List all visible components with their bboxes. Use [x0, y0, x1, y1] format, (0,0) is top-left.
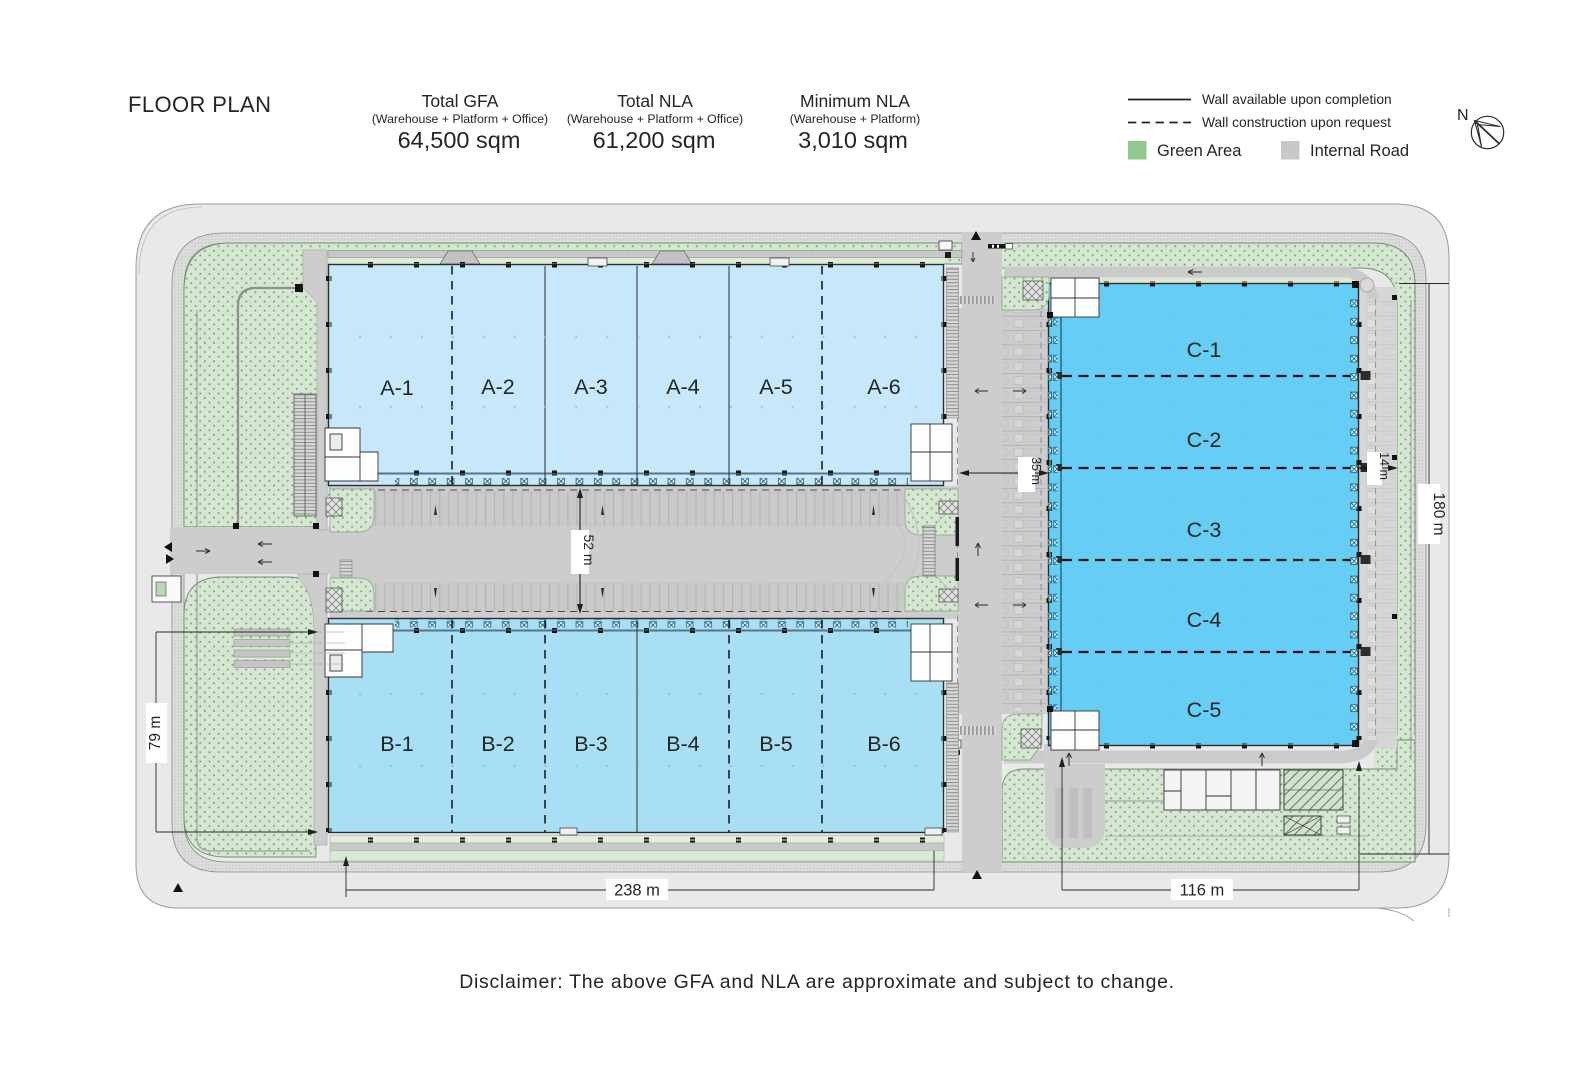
- svg-text:Total GFA: Total GFA: [422, 91, 499, 111]
- svg-text:3,010 sqm: 3,010 sqm: [798, 127, 908, 153]
- svg-text:14 m: 14 m: [1377, 452, 1391, 480]
- svg-text:Internal Road: Internal Road: [1310, 142, 1409, 160]
- svg-text:B-5: B-5: [759, 732, 793, 756]
- svg-text:238 m: 238 m: [614, 882, 660, 900]
- svg-text:B-4: B-4: [666, 732, 700, 756]
- svg-text:B-2: B-2: [481, 732, 514, 756]
- svg-text:C-4: C-4: [1187, 608, 1222, 632]
- svg-text:Green Area: Green Area: [1157, 142, 1242, 160]
- svg-text:FLOOR PLAN: FLOOR PLAN: [128, 92, 271, 117]
- svg-text:C-2: C-2: [1187, 428, 1222, 452]
- svg-text:A-4: A-4: [666, 375, 700, 399]
- svg-text:B-6: B-6: [867, 732, 901, 756]
- svg-text:35 m: 35 m: [1029, 457, 1043, 485]
- svg-text:(Warehouse + Platform + Office: (Warehouse + Platform + Office): [372, 112, 548, 126]
- svg-text:64,500 sqm: 64,500 sqm: [398, 127, 521, 153]
- svg-text:Disclaimer: The above GFA and: Disclaimer: The above GFA and NLA are ap…: [459, 971, 1175, 993]
- svg-text:B-3: B-3: [574, 732, 608, 756]
- svg-text:Minimum NLA: Minimum NLA: [800, 91, 910, 111]
- svg-text:C-1: C-1: [1187, 338, 1222, 362]
- svg-text:A-5: A-5: [759, 375, 793, 399]
- svg-text:C-5: C-5: [1187, 698, 1222, 722]
- svg-text:180 m: 180 m: [1430, 492, 1447, 535]
- svg-text:61,200 sqm: 61,200 sqm: [593, 127, 716, 153]
- svg-text:A-6: A-6: [867, 375, 901, 399]
- svg-text:A-2: A-2: [481, 375, 514, 399]
- svg-text:Wall construction upon request: Wall construction upon request: [1202, 115, 1391, 130]
- svg-text:52 m: 52 m: [581, 534, 597, 565]
- svg-text:Total NLA: Total NLA: [617, 91, 693, 111]
- svg-text:A-3: A-3: [574, 375, 608, 399]
- svg-text:116 m: 116 m: [1180, 882, 1225, 900]
- svg-text:B-1: B-1: [380, 732, 413, 756]
- svg-text:Wall available upon completion: Wall available upon completion: [1202, 92, 1392, 107]
- svg-text:N: N: [1457, 107, 1469, 124]
- svg-text:(Warehouse + Platform + Office: (Warehouse + Platform + Office): [567, 112, 743, 126]
- svg-text:79 m: 79 m: [147, 716, 164, 750]
- svg-text:C-3: C-3: [1187, 518, 1222, 542]
- svg-text:(Warehouse + Platform): (Warehouse + Platform): [790, 112, 920, 126]
- svg-text:A-1: A-1: [380, 376, 413, 400]
